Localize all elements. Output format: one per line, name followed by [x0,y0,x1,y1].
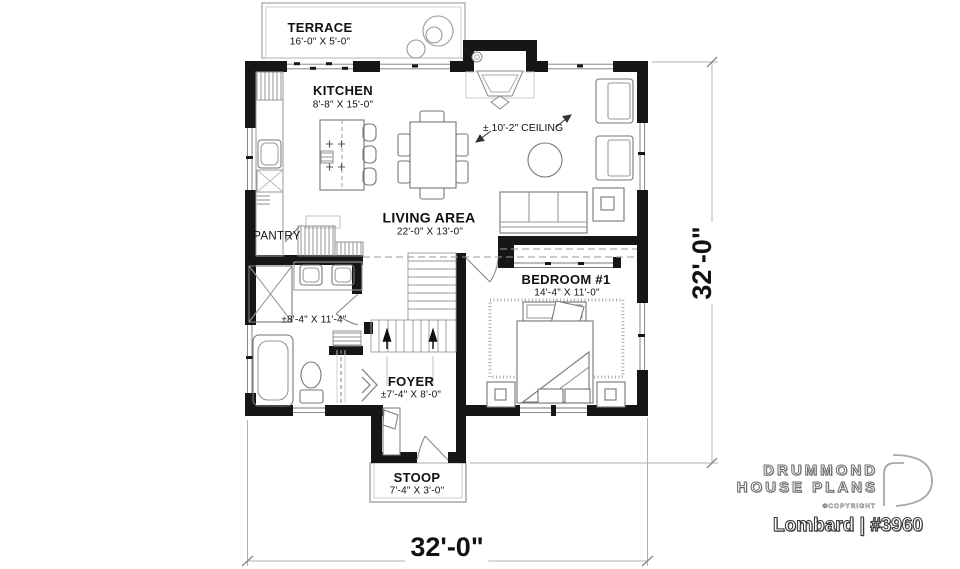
terrace-furniture [407,16,453,58]
copyright-text: ©COPYRIGHT [700,503,876,510]
foyer-label: FOYER [388,375,434,389]
pantry-label: PANTRY [253,231,300,244]
terrace-label: TERRACE [288,21,353,35]
overall-depth-dimension: 32'-0" [688,221,718,304]
stair-shelf [333,331,361,346]
floor-plan-page: TERRACE 16'-0" X 5'-0" KITCHEN 8'-8" X 1… [0,0,960,569]
overall-width-dimension: 32'-0" [405,533,488,563]
kitchen-dims: 8'-8" X 15'-0" [313,100,373,111]
stoop-label: STOOP [394,471,441,485]
bedroom-label: BEDROOM #1 [522,273,611,287]
half-wall-sill [514,262,613,268]
brand-name-line1: DRUMMOND [700,462,878,479]
bedroom-furniture [487,300,625,407]
dining-table [398,111,468,199]
kitchen-counter [256,72,283,256]
living-area-dims: 22'-0" X 13'-0" [397,227,463,238]
living-area-label: LIVING AREA [382,210,475,225]
pantry-stairs [298,216,363,256]
staircase [371,253,456,386]
coat-hooks [362,369,377,401]
fireplace [466,52,534,109]
pocket-door [337,350,345,403]
kitchen-island [320,120,376,190]
stoop-dims: 7'-4" X 3'-0" [390,486,445,497]
ceiling-note: ± 10'-2" CEILING [483,123,563,135]
bathroom-dims: ±8'-4" X 11'-4" [281,315,346,326]
foyer-bench [383,408,400,455]
drummond-logo-icon [884,455,932,506]
bedroom-dims: 14'-4" X 11'-0" [534,288,599,299]
plan-name-number: Lombard | #3960 [768,515,928,537]
kitchen-label: KITCHEN [313,84,373,98]
brand-name-line2: HOUSE PLANS [700,479,878,496]
terrace-dims: 16'-0" X 5'-0" [290,37,350,48]
foyer-dims: ±7'-4" X 8'-0" [381,390,441,401]
living-furniture [500,79,633,233]
